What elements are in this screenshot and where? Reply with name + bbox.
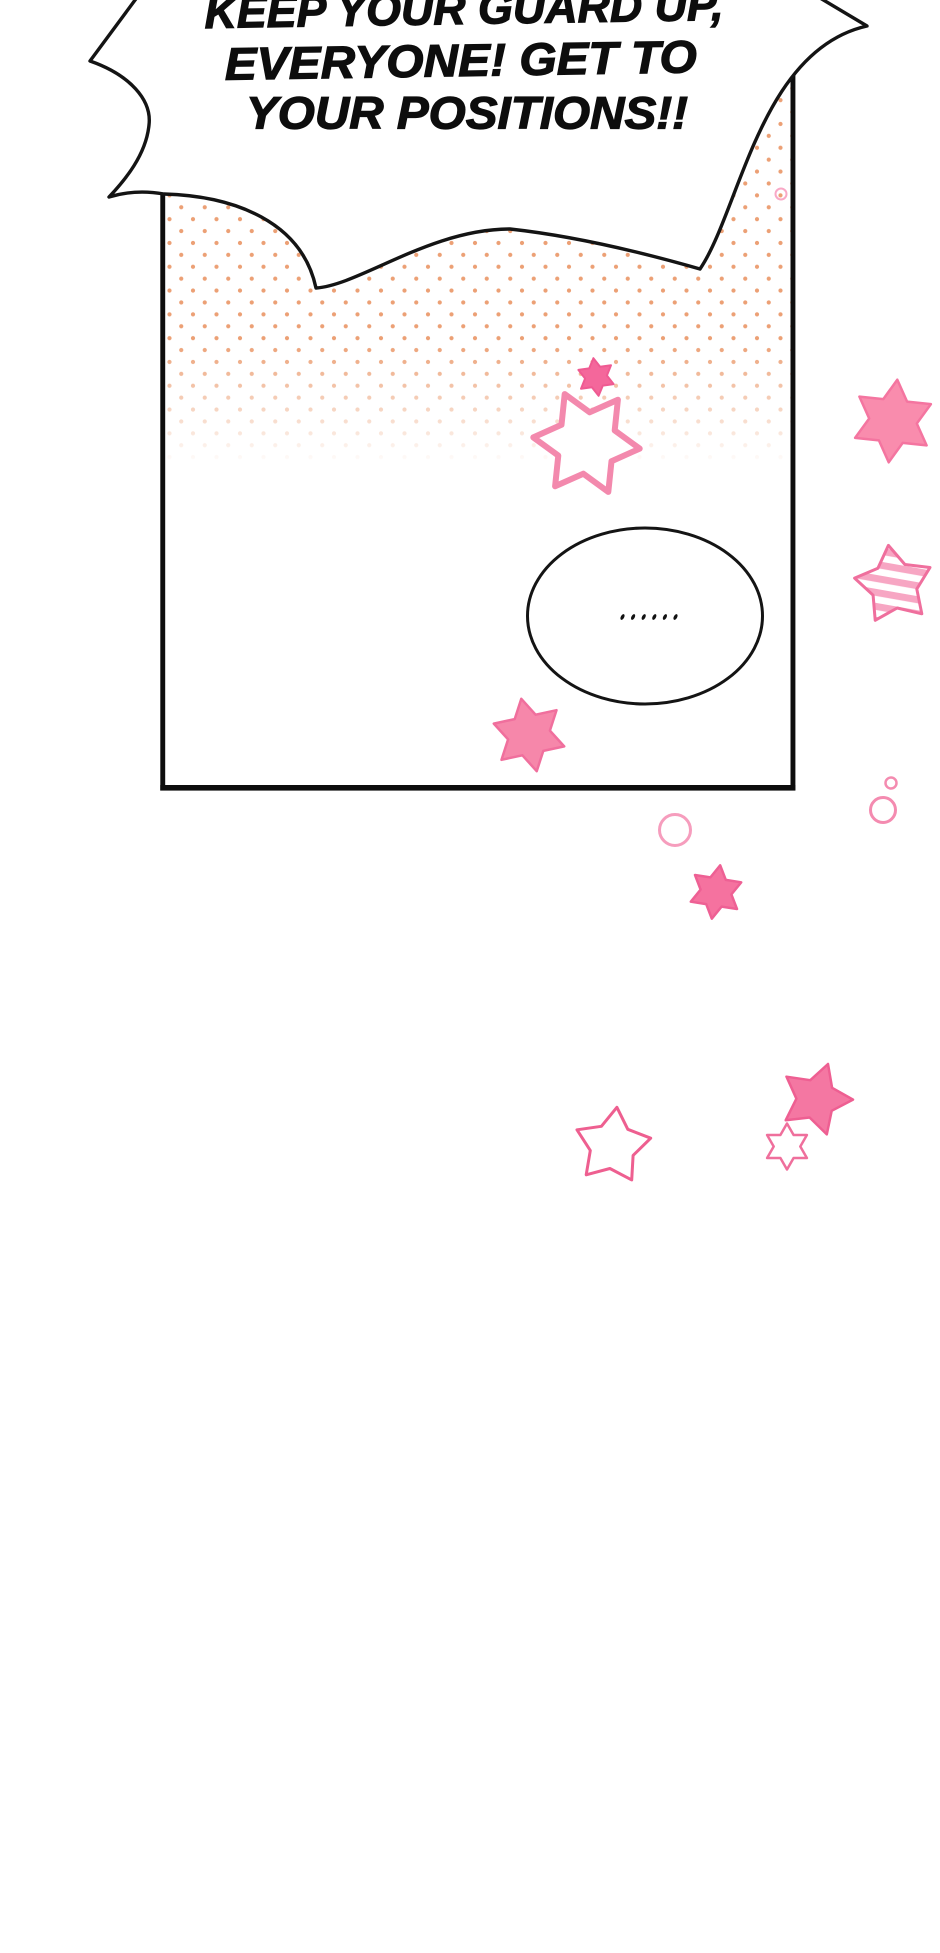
svg-text:EVERYONE! GET TO: EVERYONE! GET TO bbox=[224, 31, 697, 89]
svg-text:YOUR POSITIONS!!: YOUR POSITIONS!! bbox=[246, 88, 688, 139]
